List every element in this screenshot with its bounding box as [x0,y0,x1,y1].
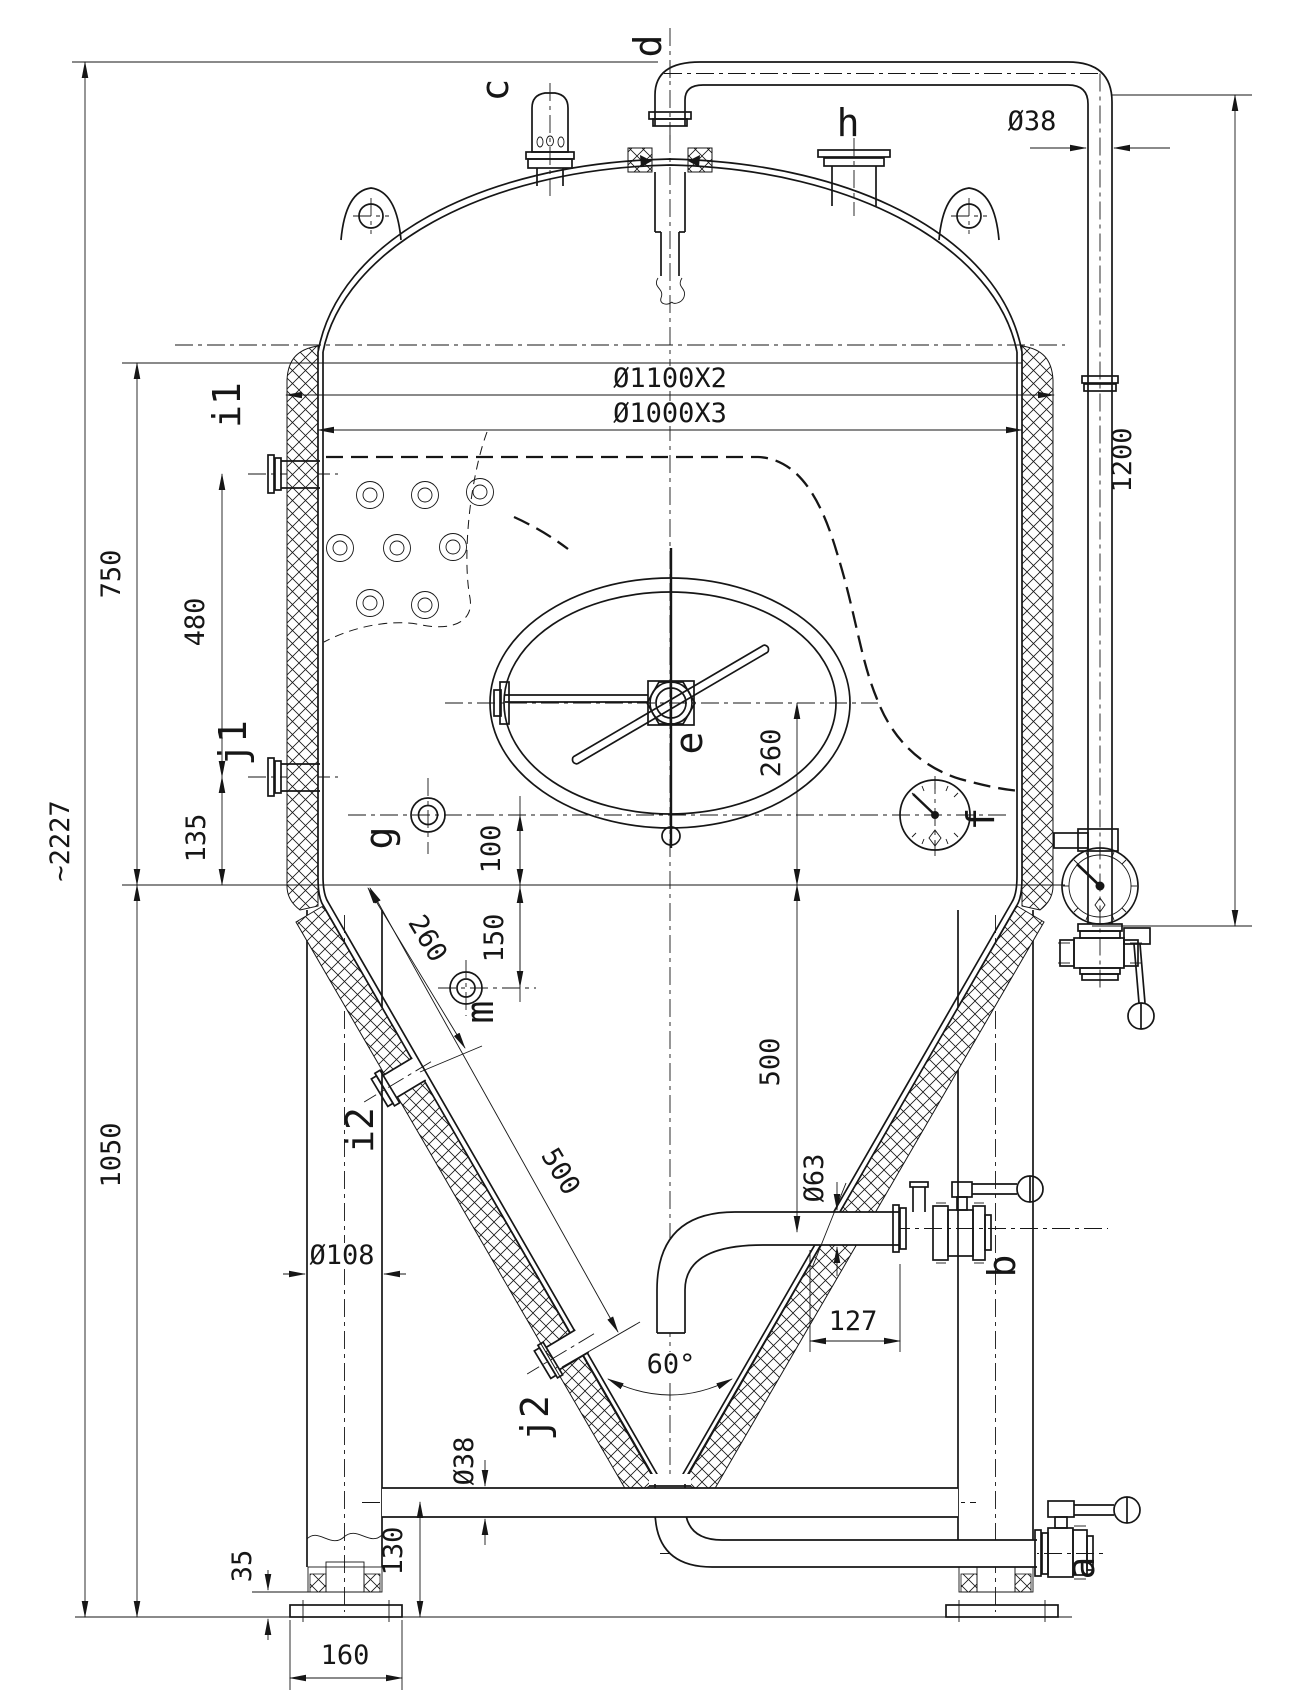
fermenter-technical-drawing: Ø1100X2 Ø1000X3 ~2227 750 480 135 1050 1… [0,0,1305,1704]
dim-legs-height: 1050 [96,1122,127,1187]
dim-j1-to-cone: 135 [181,814,212,863]
dimension-lines [85,62,1235,1678]
dim-total-height: ~2227 [45,800,76,881]
dim-shell-od: Ø1100X2 [613,363,727,394]
cip-tee-arm [1054,829,1118,851]
extension-lines [72,62,1252,1690]
cip-butterfly-valve [1058,924,1154,1029]
dim-upper-section: 750 [96,550,127,599]
dim-cone-500: 500 [534,1143,586,1201]
lifting-lug-left [341,188,401,240]
dim-brace-height: 130 [378,1527,409,1576]
dim-cone-angle: 60° [647,1349,696,1380]
insulation-hatch-right-shell [1022,346,1053,910]
dim-manway-to-cone: 260 [756,729,787,778]
dim-foot-adjust: 35 [227,1550,258,1583]
label-port-b: b [980,1255,1024,1278]
lifting-lug-right [939,188,999,240]
insulation-hatch-right-cone [683,906,1044,1497]
label-port-m: m [458,1001,502,1024]
insulation-hatch-left-shell [287,346,318,910]
dim-cone-to-racking: 500 [755,1038,786,1087]
label-port-a: a [1059,1557,1103,1580]
dim-foot-plate: 160 [321,1640,370,1671]
dim-racking-offset: 127 [829,1306,878,1337]
label-port-e: e [667,732,711,755]
dim-g-to-cone: 100 [476,825,507,874]
cooling-jacket-dimples [327,479,494,619]
drawing-sheet: Ø1100X2 Ø1000X3 ~2227 750 480 135 1050 1… [0,0,1305,1704]
label-port-j2: j2 [513,1395,557,1441]
dim-racking-dia: Ø63 [799,1154,830,1203]
dim-cip-pipe-dia: Ø38 [1008,106,1057,137]
dim-cone-to-m: 150 [479,914,510,963]
label-port-c: c [473,79,517,102]
leg-cross-brace [382,1488,958,1517]
label-port-j1: j1 [211,720,255,766]
label-port-i2: i2 [338,1107,382,1153]
dim-leg-dia: Ø108 [309,1240,374,1271]
dim-side-ports-spacing: 480 [180,598,211,647]
label-port-g: g [357,827,401,850]
label-port-f: f [959,808,1003,831]
insulation-hatch-left-cone [296,906,657,1497]
label-port-h: h [837,101,860,145]
label-port-i1: i1 [205,382,249,428]
dim-brace-pipe-dia: Ø38 [449,1437,480,1486]
dim-shell-id: Ø1000X3 [613,398,727,429]
dim-cip-drop-height: 1200 [1107,427,1138,492]
manway-e [490,548,850,848]
label-port-d: d [626,35,670,58]
